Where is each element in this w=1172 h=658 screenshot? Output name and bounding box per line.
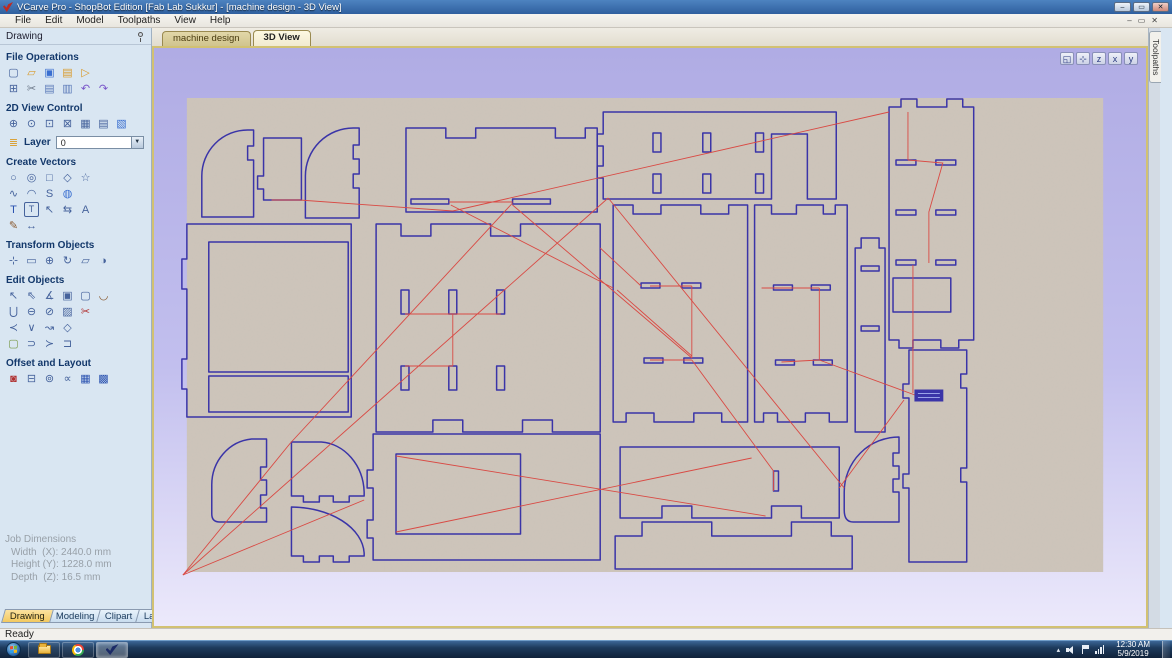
nesting-icon[interactable]: ▦ bbox=[78, 371, 93, 386]
toggle-3d-view-icon[interactable]: ▧ bbox=[114, 116, 129, 131]
create-vectors-row-2: ∿◠S◍ bbox=[0, 186, 151, 201]
main-area: machine design 3D View bbox=[152, 28, 1160, 628]
draw-ellipse-icon[interactable]: ◎ bbox=[24, 170, 39, 185]
scissors-trim-icon[interactable]: ✂ bbox=[78, 304, 93, 319]
set-size-icon[interactable]: ▭ bbox=[24, 253, 39, 268]
drawing-canvas[interactable]: ◱⊹zxy bbox=[152, 46, 1148, 628]
titlebar: VCarve Pro - ShopBot Edition [Fab Lab Su… bbox=[0, 0, 1172, 14]
section-transform-objects: Transform Objects bbox=[6, 240, 151, 251]
view-along-x-icon[interactable]: x bbox=[1108, 52, 1122, 65]
subtract-icon[interactable]: ⊖ bbox=[24, 304, 39, 319]
volume-icon[interactable] bbox=[1066, 646, 1075, 654]
network-icon[interactable] bbox=[1095, 645, 1104, 654]
cut-icon[interactable]: ✂ bbox=[24, 81, 39, 96]
edit-objects-row-1: ↖⇖∡▣▢◡ bbox=[0, 288, 151, 303]
hidden-icons-button[interactable]: ▴ bbox=[1057, 646, 1061, 654]
tab-3d-view[interactable]: 3D View bbox=[253, 30, 311, 46]
save-file-icon[interactable]: ▣ bbox=[42, 65, 57, 80]
section-create-vectors: Create Vectors bbox=[6, 157, 151, 168]
edit-objects-row-2: ⋃⊖⊘▨✂ bbox=[0, 304, 151, 319]
circular-copy-icon[interactable]: ⊚ bbox=[42, 371, 57, 386]
windows-flag-icon bbox=[10, 646, 17, 654]
status-text: Ready bbox=[5, 629, 34, 640]
close-vector-icon[interactable]: ∨ bbox=[24, 320, 39, 335]
center-in-material-icon[interactable]: ⊕ bbox=[42, 253, 57, 268]
show-desktop-button[interactable] bbox=[1162, 641, 1170, 658]
create-vectors-row-3: TT↖⇆A bbox=[0, 202, 151, 217]
measure-icon[interactable]: ∡ bbox=[42, 288, 57, 303]
extend-icon[interactable]: ◇ bbox=[60, 320, 75, 335]
fillet-icon[interactable]: ◡ bbox=[96, 288, 111, 303]
draw-polyline-icon[interactable]: ∿ bbox=[6, 186, 21, 201]
redo-icon[interactable]: ↷ bbox=[96, 81, 111, 96]
vector-texture-icon[interactable]: ✎ bbox=[6, 218, 21, 233]
mdi-minimize-button[interactable]: – bbox=[1127, 16, 1131, 25]
job-width: Width (X): 2440.0 mm bbox=[11, 547, 112, 560]
statusbar: Ready bbox=[0, 628, 1172, 640]
view-along-y-icon[interactable]: y bbox=[1124, 52, 1138, 65]
bridge-close-icon[interactable]: ≻ bbox=[42, 336, 57, 351]
array-copy-icon[interactable]: ⊟ bbox=[24, 371, 39, 386]
sidebar-tab-strip: Drawing Modeling Clipart Layers bbox=[3, 609, 176, 623]
draw-text-icon[interactable]: T bbox=[6, 202, 21, 217]
zoom-box-icon[interactable]: ⊡ bbox=[42, 116, 57, 131]
chevron-down-icon[interactable]: ▼ bbox=[131, 137, 143, 148]
copy-icon[interactable]: ▤ bbox=[42, 81, 57, 96]
panel-title: Drawing bbox=[6, 31, 43, 42]
zoom-selected-icon[interactable]: ⊠ bbox=[60, 116, 75, 131]
vcarve-logo-icon bbox=[3, 2, 13, 12]
material-board[interactable] bbox=[187, 98, 1103, 572]
select-text-icon[interactable]: ↖ bbox=[42, 202, 57, 217]
section-edit-objects: Edit Objects bbox=[6, 275, 151, 286]
toggle-2d-3d-window-icon[interactable]: ◱ bbox=[1060, 52, 1074, 65]
taskbar: ▴ 12:30 AM 5/9/2019 bbox=[0, 640, 1172, 658]
weld-icon[interactable]: ⋃ bbox=[6, 304, 21, 319]
menu-view[interactable]: View bbox=[167, 14, 203, 27]
layer-value: 0 bbox=[61, 138, 66, 148]
smart-join-icon[interactable]: ⊐ bbox=[60, 336, 75, 351]
taskbar-explorer-button[interactable] bbox=[28, 642, 60, 658]
view-control-row: ⊕⊙⊡⊠▦▤▧ bbox=[0, 116, 151, 131]
selected-part[interactable] bbox=[915, 390, 943, 401]
zoom-drawing-icon[interactable]: ▦ bbox=[78, 116, 93, 131]
section-offset-layout: Offset and Layout bbox=[6, 358, 151, 369]
right-rail: Toolpaths bbox=[1148, 28, 1160, 628]
mirror-icon[interactable]: ◑ bbox=[96, 253, 111, 268]
close-button[interactable]: ✕ bbox=[1152, 2, 1169, 12]
export-vectors-icon[interactable]: ▷ bbox=[78, 65, 93, 80]
dimension-icon[interactable]: ↔ bbox=[24, 218, 39, 233]
rotate-icon[interactable]: ↻ bbox=[60, 253, 75, 268]
mdi-close-button[interactable]: ✕ bbox=[1151, 16, 1158, 25]
paste-icon[interactable]: ▥ bbox=[60, 81, 75, 96]
section-file-operations: File Operations bbox=[6, 52, 151, 63]
menu-model[interactable]: Model bbox=[69, 14, 110, 27]
view-down-z-icon[interactable]: z bbox=[1092, 52, 1106, 65]
vector-validator-icon[interactable]: ▨ bbox=[60, 304, 75, 319]
new-file-icon[interactable]: ▢ bbox=[6, 65, 21, 80]
layer-row: ≣ Layer 0 ▼ bbox=[0, 135, 151, 150]
mdi-restore-button[interactable]: ▭ bbox=[1138, 16, 1146, 25]
draw-curve-icon[interactable]: S bbox=[42, 186, 57, 201]
join-open-vectors-icon[interactable]: ≺ bbox=[6, 320, 21, 335]
draw-circle-icon[interactable]: ○ bbox=[6, 170, 21, 185]
select-vectors-icon[interactable]: ↖ bbox=[6, 288, 21, 303]
bridge-open-icon[interactable]: ⊃ bbox=[24, 336, 39, 351]
offset-vectors-icon[interactable]: ◙ bbox=[6, 371, 21, 386]
draw-arc-icon[interactable]: ◠ bbox=[24, 186, 39, 201]
menu-help[interactable]: Help bbox=[203, 14, 238, 27]
fit-curve-icon[interactable]: ↝ bbox=[42, 320, 57, 335]
zoom-material-icon[interactable]: ▤ bbox=[96, 116, 111, 131]
job-dimensions-title: Job Dimensions bbox=[5, 534, 112, 545]
menu-file[interactable]: File bbox=[8, 14, 38, 27]
undo-icon[interactable]: ↶ bbox=[78, 81, 93, 96]
draw-polygon-icon[interactable]: ◇ bbox=[60, 170, 75, 185]
convert-text-icon[interactable]: A bbox=[78, 202, 93, 217]
draw-spiral-icon[interactable]: ◍ bbox=[60, 186, 75, 201]
move-selection-icon[interactable]: ⊹ bbox=[6, 253, 21, 268]
action-center-icon[interactable] bbox=[1081, 645, 1089, 654]
window-title: VCarve Pro - ShopBot Edition [Fab Lab Su… bbox=[17, 2, 342, 13]
menu-edit[interactable]: Edit bbox=[38, 14, 69, 27]
vcarve-window: VCarve Pro - ShopBot Edition [Fab Lab Su… bbox=[0, 0, 1172, 658]
document-tab-strip: machine design 3D View bbox=[152, 28, 1160, 46]
transform-objects-row: ⊹▭⊕↻▱◑ bbox=[0, 253, 151, 268]
toolpaths-tab[interactable]: Toolpaths bbox=[1149, 31, 1161, 83]
explorer-icon bbox=[38, 645, 51, 654]
tab-drawing[interactable]: Drawing bbox=[1, 609, 54, 623]
isometric-view-icon[interactable]: ⊹ bbox=[1076, 52, 1090, 65]
job-depth: Depth (Z): 16.5 mm bbox=[11, 572, 112, 585]
start-button[interactable] bbox=[6, 642, 21, 657]
pan-view-icon[interactable]: ⊕ bbox=[6, 116, 21, 131]
taskbar-chrome-button[interactable] bbox=[62, 642, 94, 658]
job-dimensions: Job Dimensions Width (X): 2440.0 mm Heig… bbox=[0, 534, 112, 585]
minimize-button[interactable]: – bbox=[1114, 2, 1131, 12]
file-operations-row-1: ▢▱▣▤▷ bbox=[0, 65, 151, 80]
menu-toolpaths[interactable]: Toolpaths bbox=[111, 14, 168, 27]
create-vectors-row-1: ○◎□◇☆ bbox=[0, 170, 151, 185]
menubar: File Edit Model Toolpaths View Help – ▭ … bbox=[0, 14, 1172, 28]
file-operations-row-2: ⊞✂▤▥↶↷ bbox=[0, 81, 151, 96]
draw-star-icon[interactable]: ☆ bbox=[78, 170, 93, 185]
panel-header: Drawing bbox=[0, 28, 151, 45]
drawing-panel: Drawing File Operations ▢▱▣▤▷ ⊞✂▤▥↶↷ 2D … bbox=[0, 28, 152, 628]
true-shape-nesting-icon[interactable]: ▩ bbox=[96, 371, 111, 386]
edit-objects-row-3: ≺∨↝◇ bbox=[0, 320, 151, 335]
taskbar-vcarve-button[interactable] bbox=[96, 642, 128, 658]
job-height: Height (Y): 1228.0 mm bbox=[11, 559, 112, 572]
pin-icon[interactable] bbox=[136, 32, 145, 41]
section-2d-view-control: 2D View Control bbox=[6, 103, 151, 114]
text-spacing-icon[interactable]: ⇆ bbox=[60, 202, 75, 217]
node-edit-icon[interactable]: ⇖ bbox=[24, 288, 39, 303]
chrome-icon bbox=[72, 644, 84, 656]
taskbar-clock[interactable]: 12:30 AM 5/9/2019 bbox=[1110, 641, 1156, 658]
vcarve-taskbar-icon bbox=[106, 644, 119, 655]
ungroup-icon[interactable]: ▢ bbox=[78, 288, 93, 303]
create-outline-icon[interactable]: ▢ bbox=[6, 336, 21, 351]
trim-overlap-icon[interactable]: ⊘ bbox=[42, 304, 57, 319]
select-all-icon[interactable]: ⊞ bbox=[6, 81, 21, 96]
clock-date: 5/9/2019 bbox=[1118, 649, 1149, 658]
import-vectors-icon[interactable]: ▤ bbox=[60, 65, 75, 80]
restore-button[interactable]: ▭ bbox=[1133, 2, 1150, 12]
layers-icon: ≣ bbox=[6, 135, 21, 150]
group-icon[interactable]: ▣ bbox=[60, 288, 75, 303]
layer-select[interactable]: 0 ▼ bbox=[56, 136, 144, 149]
system-tray: ▴ 12:30 AM 5/9/2019 bbox=[1057, 641, 1170, 658]
edit-objects-row-4: ▢⊃≻⊐ bbox=[0, 336, 151, 351]
layer-label: Layer bbox=[24, 137, 51, 148]
distort-icon[interactable]: ▱ bbox=[78, 253, 93, 268]
copy-along-vectors-icon[interactable]: ∝ bbox=[60, 371, 75, 386]
open-file-icon[interactable]: ▱ bbox=[24, 65, 39, 80]
tab-machine-design[interactable]: machine design bbox=[162, 31, 251, 46]
create-vectors-row-4: ✎↔ bbox=[0, 218, 151, 233]
draw-text-box-icon[interactable]: T bbox=[24, 202, 39, 217]
tab-modeling[interactable]: Modeling bbox=[47, 609, 104, 623]
offset-layout-row: ◙⊟⊚∝▦▩ bbox=[0, 371, 151, 386]
view-buttons: ◱⊹zxy bbox=[1060, 52, 1138, 65]
zoom-interactive-icon[interactable]: ⊙ bbox=[24, 116, 39, 131]
draw-rectangle-icon[interactable]: □ bbox=[42, 170, 57, 185]
